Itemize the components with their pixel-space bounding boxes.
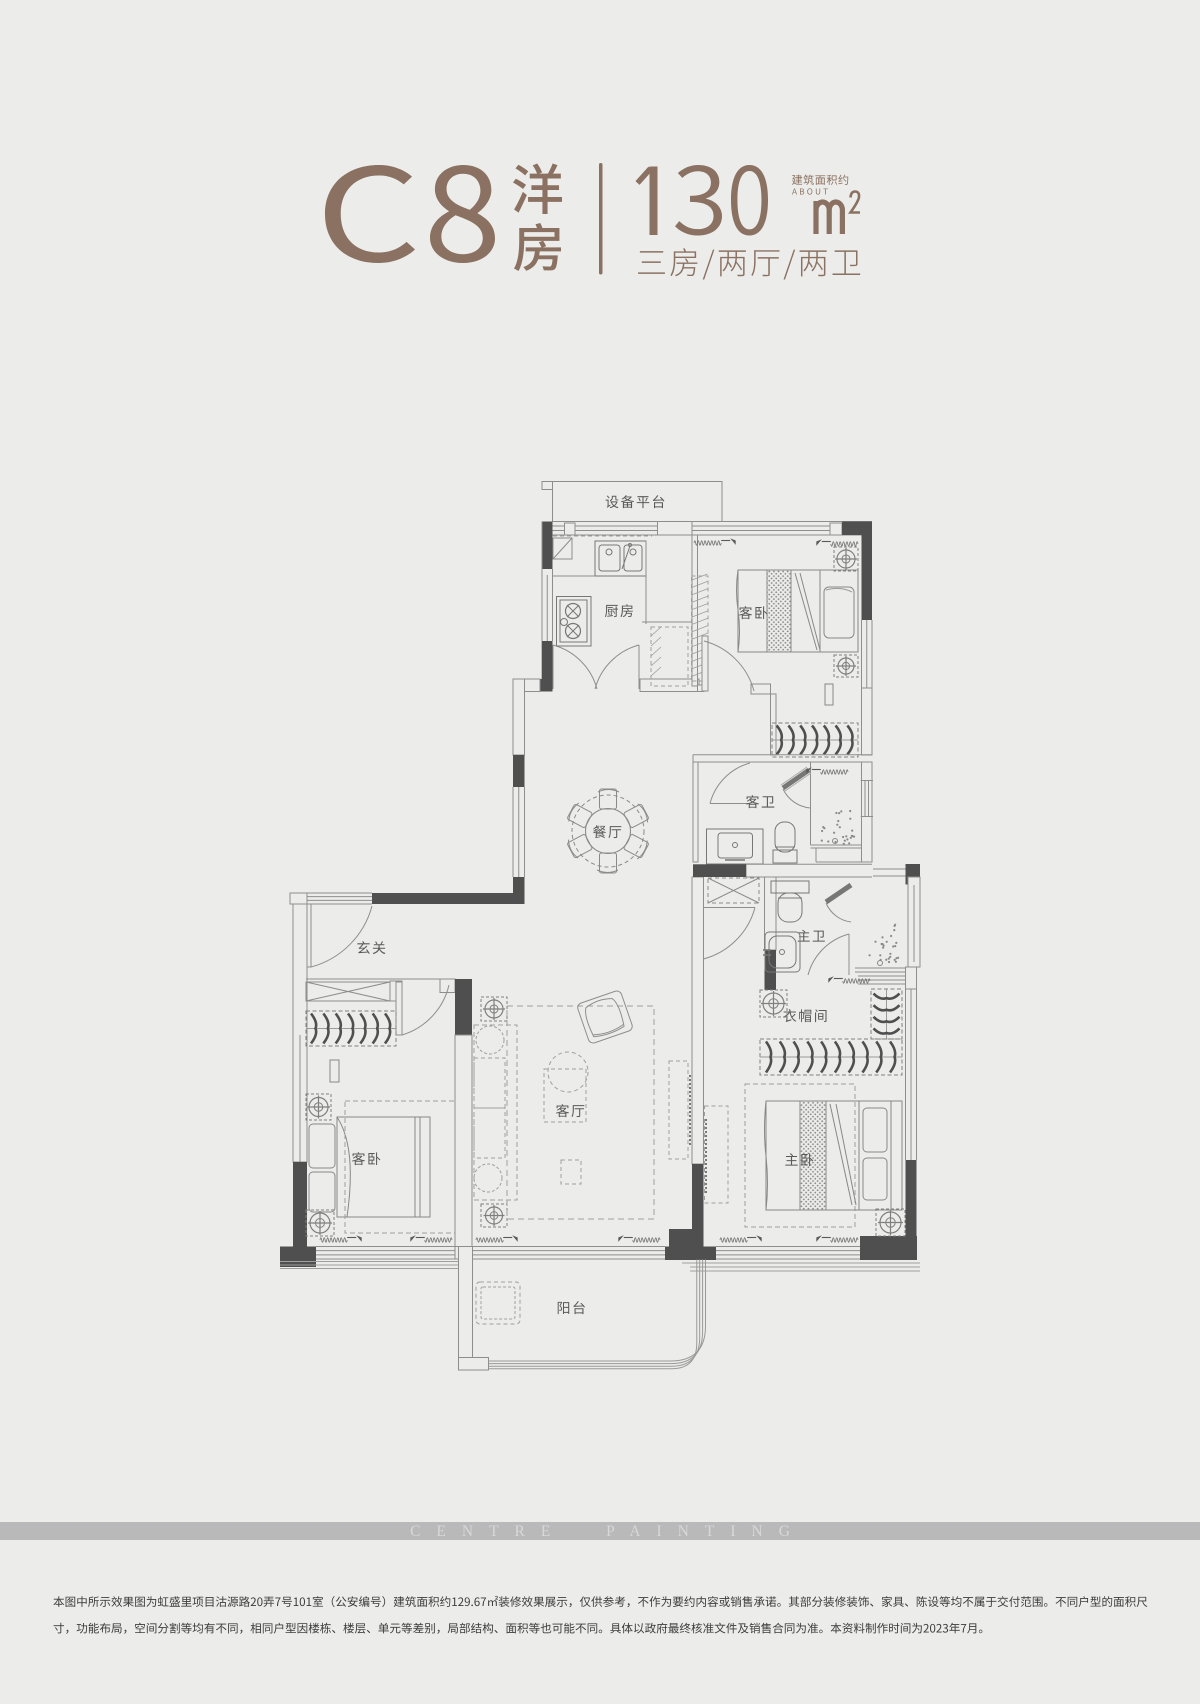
svg-text:CENTRE PAINTING: CENTRE PAINTING bbox=[410, 1523, 806, 1540]
